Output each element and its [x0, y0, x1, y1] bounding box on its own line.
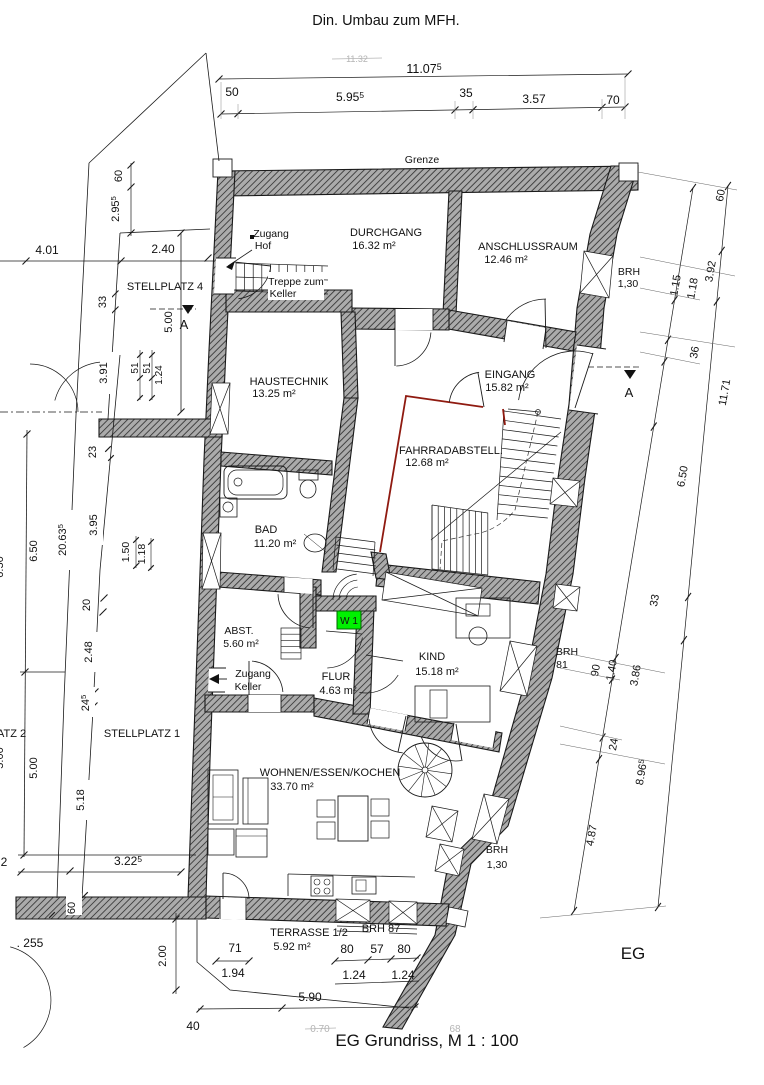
- svg-text:20: 20: [81, 599, 93, 611]
- svg-text:Keller: Keller: [270, 288, 297, 300]
- svg-text:60: 60: [113, 170, 125, 182]
- svg-text:20.635: 20.635: [56, 524, 69, 556]
- svg-text:1.24: 1.24: [154, 365, 165, 385]
- svg-text:2.48: 2.48: [83, 641, 95, 662]
- svg-text:Grenze: Grenze: [405, 154, 440, 166]
- svg-text:12.68 m²: 12.68 m²: [405, 457, 449, 469]
- svg-text:FAHRRADABSTELL.: FAHRRADABSTELL.: [399, 445, 503, 457]
- svg-text:13.25 m²: 13.25 m²: [252, 388, 296, 400]
- svg-text:1,30: 1,30: [487, 859, 508, 871]
- svg-text:33.70 m²: 33.70 m²: [270, 781, 314, 793]
- svg-text:BRH: BRH: [618, 266, 640, 278]
- svg-text:80: 80: [340, 942, 354, 956]
- svg-text:STELLPLATZ 1: STELLPLATZ 1: [104, 728, 180, 740]
- svg-text:5.60 m²: 5.60 m²: [223, 638, 259, 650]
- svg-text:11.075: 11.075: [406, 62, 441, 76]
- svg-text:57: 57: [370, 942, 384, 956]
- svg-text:ANSCHLUSSRAUM: ANSCHLUSSRAUM: [478, 241, 578, 253]
- svg-text:36: 36: [688, 345, 702, 359]
- svg-text:TERRASSE 1/2: TERRASSE 1/2: [270, 927, 348, 939]
- svg-text:1.94: 1.94: [221, 966, 245, 980]
- svg-text:1.50: 1.50: [120, 542, 132, 563]
- svg-text:15.18 m²: 15.18 m²: [415, 666, 459, 678]
- svg-text:. 255: . 255: [17, 936, 44, 950]
- svg-text:Hof: Hof: [255, 240, 271, 252]
- svg-text:50: 50: [225, 85, 239, 99]
- svg-text:BRH: BRH: [556, 646, 578, 658]
- svg-text:35: 35: [459, 86, 473, 100]
- svg-text:5.90: 5.90: [298, 990, 322, 1004]
- svg-text:6.50: 6.50: [28, 540, 40, 561]
- svg-text:12.46 m²: 12.46 m²: [484, 254, 528, 266]
- svg-text:HAUSTECHNIK: HAUSTECHNIK: [250, 376, 330, 388]
- svg-text:51: 51: [142, 362, 153, 374]
- svg-text:16.32 m²: 16.32 m²: [352, 240, 396, 252]
- svg-text:81: 81: [556, 659, 568, 671]
- svg-text:Keller: Keller: [235, 681, 262, 693]
- svg-text:0.70: 0.70: [310, 1024, 330, 1035]
- svg-text:4.63 m²: 4.63 m²: [319, 685, 357, 697]
- svg-text:1.24: 1.24: [342, 968, 366, 982]
- svg-text:4.01: 4.01: [35, 243, 59, 257]
- svg-text:ABST.: ABST.: [224, 625, 253, 637]
- svg-text:5.00: 5.00: [0, 747, 6, 768]
- svg-text:BRH: BRH: [486, 844, 508, 856]
- svg-text:BRH 87: BRH 87: [362, 923, 401, 935]
- svg-text:Zugang: Zugang: [235, 668, 271, 680]
- svg-text:60: 60: [714, 188, 728, 202]
- svg-text:5.92 m²: 5.92 m²: [273, 941, 311, 953]
- svg-text:BAD: BAD: [255, 524, 278, 536]
- svg-text:11.20 m²: 11.20 m²: [254, 538, 297, 550]
- svg-text:1.18: 1.18: [136, 544, 148, 565]
- svg-text:5.00: 5.00: [163, 311, 175, 332]
- svg-text:EINGANG: EINGANG: [485, 369, 536, 381]
- svg-text:33: 33: [648, 593, 662, 607]
- svg-text:33: 33: [97, 296, 109, 308]
- svg-text:Din. Umbau zum MFH.: Din. Umbau zum MFH.: [312, 13, 459, 29]
- svg-text:40: 40: [186, 1019, 200, 1033]
- svg-text:STELLPLATZ 2: STELLPLATZ 2: [0, 728, 26, 740]
- svg-text:EG Grundriss, M 1 : 100: EG Grundriss, M 1 : 100: [335, 1031, 518, 1050]
- svg-text:STELLPLATZ 4: STELLPLATZ 4: [127, 281, 203, 293]
- svg-text:Zugang: Zugang: [253, 228, 289, 240]
- svg-text:6.50: 6.50: [0, 556, 6, 577]
- svg-text:3.91: 3.91: [98, 362, 110, 383]
- svg-text:3.95: 3.95: [88, 514, 100, 535]
- svg-text:70: 70: [606, 93, 620, 107]
- svg-text:2.40: 2.40: [151, 242, 175, 256]
- svg-text:71: 71: [228, 941, 242, 955]
- svg-text:WOHNEN/ESSEN/KOCHEN: WOHNEN/ESSEN/KOCHEN: [260, 767, 401, 779]
- svg-text:FLUR: FLUR: [322, 671, 351, 683]
- svg-text:80: 80: [397, 942, 411, 956]
- svg-text:23: 23: [87, 446, 99, 458]
- svg-text:5.18: 5.18: [75, 789, 87, 810]
- svg-text:3.57: 3.57: [522, 92, 546, 106]
- svg-text:2: 2: [1, 855, 8, 869]
- svg-text:1,30: 1,30: [618, 278, 639, 290]
- svg-text:51: 51: [130, 362, 141, 374]
- svg-text:1.24: 1.24: [391, 968, 415, 982]
- svg-text:KIND: KIND: [419, 651, 445, 663]
- svg-text:A: A: [625, 385, 634, 400]
- svg-text:60: 60: [66, 902, 78, 914]
- svg-text:W 1: W 1: [340, 616, 358, 627]
- svg-text:15.82 m²: 15.82 m²: [485, 382, 529, 394]
- svg-text:EG: EG: [621, 944, 646, 963]
- svg-text:Treppe zum: Treppe zum: [268, 276, 324, 288]
- svg-text:DURCHGANG: DURCHGANG: [350, 227, 422, 239]
- svg-text:5.00: 5.00: [28, 757, 40, 778]
- svg-text:2.00: 2.00: [157, 945, 169, 966]
- svg-text:68: 68: [449, 1024, 461, 1035]
